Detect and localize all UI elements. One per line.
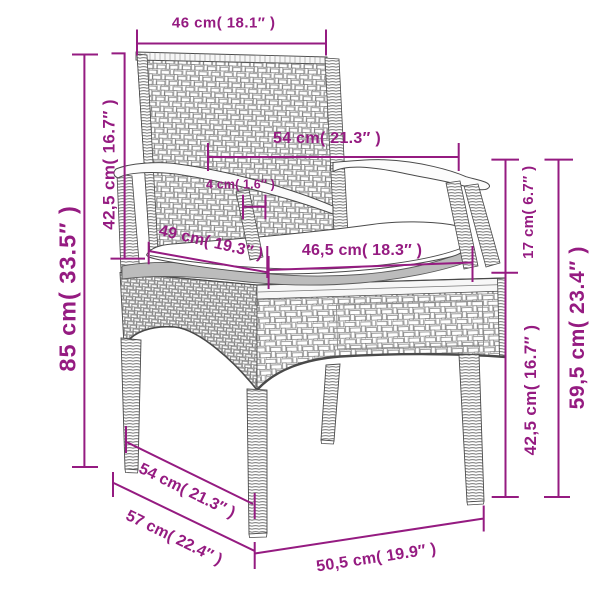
- svg-text:46,5 cm( 18.3″ ): 46,5 cm( 18.3″ ): [302, 242, 422, 259]
- svg-text:46 cm( 18.1″ ): 46 cm( 18.1″ ): [172, 15, 276, 32]
- svg-text:59,5 cm( 23.4″ ): 59,5 cm( 23.4″ ): [566, 246, 589, 409]
- svg-text:54 cm( 21.3″ ): 54 cm( 21.3″ ): [273, 130, 381, 147]
- svg-text:42,5 cm( 16.7″ ): 42,5 cm( 16.7″ ): [521, 325, 540, 456]
- svg-text:17 cm( 6.7″ ): 17 cm( 6.7″ ): [520, 165, 537, 258]
- svg-text:42,5 cm( 16.7″ ): 42,5 cm( 16.7″ ): [100, 99, 119, 230]
- svg-text:4 cm( 1.6″ ): 4 cm( 1.6″ ): [206, 178, 275, 192]
- svg-text:85 cm( 33.5″ ): 85 cm( 33.5″ ): [55, 205, 81, 371]
